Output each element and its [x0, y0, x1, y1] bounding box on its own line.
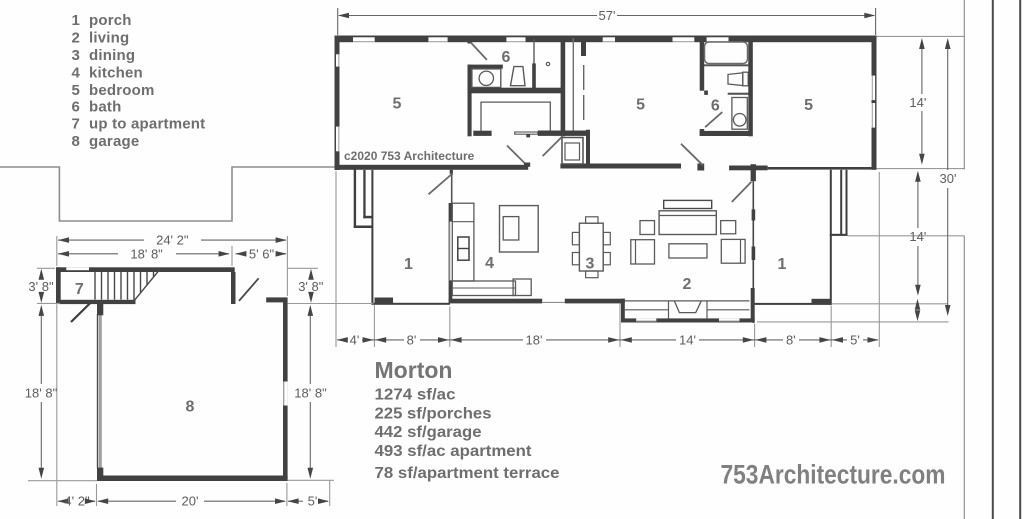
svg-text:5: 5 — [393, 96, 402, 113]
svg-text:Morton: Morton — [375, 357, 453, 383]
svg-text:18' 8": 18' 8" — [130, 246, 163, 261]
svg-text:3' 8": 3' 8" — [28, 279, 54, 294]
svg-text:5: 5 — [804, 97, 813, 114]
svg-text:7: 7 — [75, 281, 84, 298]
svg-text:57': 57' — [599, 8, 616, 23]
svg-text:6: 6 — [502, 49, 511, 66]
svg-text:14': 14' — [909, 95, 926, 110]
svg-text:8': 8' — [407, 333, 417, 348]
svg-text:5': 5' — [850, 333, 860, 348]
svg-text:18' 8": 18' 8" — [294, 386, 327, 401]
svg-text:442 sf/garage: 442 sf/garage — [375, 424, 482, 441]
svg-text:bedroom: bedroom — [89, 82, 155, 99]
svg-text:8: 8 — [71, 133, 80, 150]
svg-text:4: 4 — [485, 255, 494, 272]
svg-text:2: 2 — [683, 276, 692, 293]
svg-text:5' 6": 5' 6" — [249, 246, 275, 261]
svg-text:225 sf/porches: 225 sf/porches — [375, 406, 492, 423]
svg-text:porch: porch — [89, 12, 132, 29]
svg-text:6: 6 — [711, 98, 720, 115]
svg-text:3: 3 — [586, 256, 595, 273]
svg-text:493 sf/ac apartment: 493 sf/ac apartment — [375, 443, 533, 460]
svg-text:8: 8 — [186, 399, 195, 416]
svg-text:3: 3 — [71, 47, 80, 64]
svg-text:5: 5 — [636, 97, 645, 114]
svg-text:30': 30' — [940, 171, 957, 186]
svg-text:8': 8' — [786, 333, 796, 348]
svg-text:1: 1 — [404, 256, 413, 273]
svg-text:4: 4 — [71, 65, 80, 82]
svg-text:14': 14' — [909, 229, 926, 244]
svg-text:20': 20' — [182, 494, 199, 509]
svg-text:18': 18' — [526, 333, 543, 348]
svg-text:6: 6 — [71, 99, 80, 116]
svg-text:2: 2 — [71, 29, 80, 46]
svg-text:7: 7 — [71, 115, 80, 132]
svg-text:4' 2": 4' 2" — [64, 494, 90, 509]
svg-text:up to apartment: up to apartment — [89, 115, 205, 132]
svg-text:1: 1 — [71, 12, 80, 29]
svg-text:78 sf/apartment terrace: 78 sf/apartment terrace — [375, 465, 560, 482]
svg-text:garage: garage — [89, 133, 139, 150]
svg-text:5: 5 — [71, 82, 80, 99]
svg-text:dining: dining — [89, 47, 135, 64]
svg-text:1: 1 — [778, 256, 787, 273]
svg-text:bath: bath — [89, 99, 121, 116]
svg-text:living: living — [89, 29, 129, 46]
svg-text:5': 5' — [308, 494, 318, 509]
svg-text:18' 8": 18' 8" — [25, 386, 58, 401]
svg-text:1274 sf/ac: 1274 sf/ac — [375, 387, 456, 404]
svg-text:14': 14' — [679, 333, 696, 348]
svg-text:4': 4' — [350, 333, 360, 348]
svg-text:kitchen: kitchen — [89, 65, 143, 82]
svg-text:753Architecture.com: 753Architecture.com — [721, 460, 946, 490]
svg-text:3' 8": 3' 8" — [298, 279, 324, 294]
svg-text:c2020 753 Architecture: c2020 753 Architecture — [344, 149, 475, 163]
